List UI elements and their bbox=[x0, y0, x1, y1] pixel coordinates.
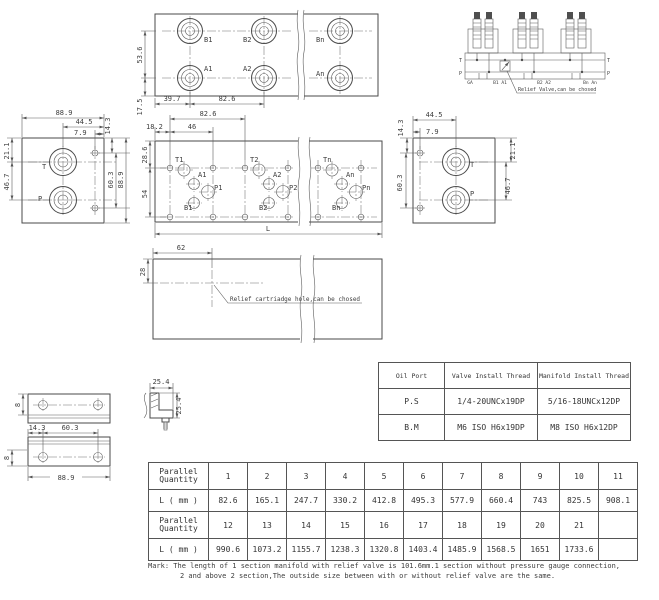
table-cell: 990.6 bbox=[209, 539, 248, 561]
port-label: P bbox=[38, 195, 42, 203]
oil-table-header: Oil Port bbox=[379, 363, 445, 389]
dim-label: 46.7 bbox=[3, 174, 11, 191]
table-cell: M6 ISO H6x19DP bbox=[445, 415, 538, 441]
dim-label: 88.9 bbox=[56, 109, 73, 117]
port-label: T2 bbox=[250, 156, 258, 164]
table-row: L ( mm ) 990.6 1073.2 1155.7 1238.3 1320… bbox=[149, 539, 638, 561]
schematic-label: B1 A1 bbox=[493, 80, 507, 86]
valve-symbol-1 bbox=[468, 12, 498, 79]
port-label: B2 bbox=[259, 204, 267, 212]
dim-label: 54 bbox=[141, 190, 149, 198]
mark-note-line2: 2 and above 2 section,The outside size b… bbox=[180, 571, 620, 581]
dim-label: 88.9 bbox=[58, 474, 75, 482]
table-cell: 4 bbox=[326, 463, 365, 490]
dim-label: 17.5 bbox=[136, 99, 144, 116]
table-cell: B.M bbox=[379, 415, 445, 441]
right-end-view: T P 44.5 7.9 14.3 60.3 21.1 46.7 bbox=[396, 111, 517, 223]
bracket-bottom-view: 14.3 60.3 8 88.9 bbox=[3, 424, 110, 482]
table-cell: 16 bbox=[365, 512, 404, 539]
table-cell: Parallel Quantity bbox=[149, 512, 209, 539]
table-cell: 743 bbox=[521, 490, 560, 512]
schematic-label: T bbox=[607, 58, 610, 64]
left-end-view: T P 88.9 44.5 7.9 14.3 21.1 46.7 60.3 88… bbox=[3, 109, 130, 223]
table-cell: 1651 bbox=[521, 539, 560, 561]
oil-table-header: Valve Install Thread bbox=[445, 363, 538, 389]
port-label: An bbox=[316, 70, 324, 78]
table-cell: L ( mm ) bbox=[149, 539, 209, 561]
port-label: Tn bbox=[323, 156, 331, 164]
table-cell: 7 bbox=[443, 463, 482, 490]
table-row: B.M M6 ISO H6x19DP M8 ISO H6x12DP bbox=[379, 415, 631, 441]
table-cell: 1403.4 bbox=[404, 539, 443, 561]
schematic-label: GA bbox=[467, 80, 473, 86]
dim-label: 7.9 bbox=[426, 128, 439, 136]
table-cell: 19 bbox=[482, 512, 521, 539]
table-cell: 6 bbox=[404, 463, 443, 490]
port-label: B1 bbox=[204, 36, 212, 44]
bracket-side-view: 25.4 25.4 bbox=[144, 378, 183, 430]
dim-label: 44.5 bbox=[76, 118, 93, 126]
table-row: L ( mm ) 82.6 165.1 247.7 330.2 412.8 49… bbox=[149, 490, 638, 512]
hydraulic-schematic: Relief Valve,can be chosed T P T P GA B1… bbox=[459, 12, 610, 93]
port-label: A1 bbox=[204, 65, 212, 73]
dim-label: 44.5 bbox=[426, 111, 443, 119]
table-cell: 21 bbox=[560, 512, 599, 539]
oil-port-table: Oil Port Valve Install Thread Manifold I… bbox=[378, 362, 631, 441]
port-label: P bbox=[470, 190, 474, 198]
main-view: T1 A1 P1 B1 T2 A2 P2 B2 bbox=[141, 110, 382, 238]
dim-label: 14.3 bbox=[397, 120, 405, 137]
table-cell: 20 bbox=[521, 512, 560, 539]
dim-label: 25.4 bbox=[175, 398, 183, 415]
bracket-top-view: 8 bbox=[14, 394, 110, 423]
schematic-label: P bbox=[459, 71, 462, 77]
schematic-label: T bbox=[459, 58, 462, 64]
valve-symbol-2 bbox=[513, 12, 543, 79]
table-cell: 11 bbox=[599, 463, 638, 490]
port-label: A1 bbox=[198, 171, 206, 179]
port-label: B1 bbox=[184, 204, 192, 212]
dim-label: 18.2 bbox=[146, 123, 163, 131]
dim-label: 53.6 bbox=[136, 47, 144, 64]
section-note: Relief cartriadge hole,can be chosed bbox=[230, 296, 360, 303]
dim-label: 82.6 bbox=[219, 95, 236, 103]
length-table: Parallel Quantity 1 2 3 4 5 6 7 8 9 10 1… bbox=[148, 462, 638, 561]
table-cell: 1320.8 bbox=[365, 539, 404, 561]
port-label: A2 bbox=[243, 65, 251, 73]
mark-note: Mark: The length of 1 section manifold w… bbox=[148, 561, 620, 581]
table-cell: 247.7 bbox=[287, 490, 326, 512]
table-cell: 15 bbox=[326, 512, 365, 539]
table-cell: 18 bbox=[443, 512, 482, 539]
port-label: Bn bbox=[316, 36, 324, 44]
table-cell: 1155.7 bbox=[287, 539, 326, 561]
dim-label: 8 bbox=[3, 456, 11, 460]
port-label: Bn bbox=[332, 204, 340, 212]
port-label: T1 bbox=[175, 156, 183, 164]
table-cell: 660.4 bbox=[482, 490, 521, 512]
table-cell: 1073.2 bbox=[248, 539, 287, 561]
table-cell: M8 ISO H6x12DP bbox=[538, 415, 631, 441]
table-cell: 10 bbox=[560, 463, 599, 490]
table-row: P.S 1/4-20UNCx19DP 5/16-18UNCx12DP bbox=[379, 389, 631, 415]
mark-note-line1: Mark: The length of 1 section manifold w… bbox=[148, 561, 620, 571]
table-cell: 13 bbox=[248, 512, 287, 539]
port-label: T bbox=[42, 163, 47, 171]
port-label: P1 bbox=[214, 184, 222, 192]
table-cell: 12 bbox=[209, 512, 248, 539]
dim-label: 60.3 bbox=[107, 172, 115, 189]
valve-station-1: T1 A1 P1 B1 bbox=[167, 156, 222, 222]
table-cell: 82.6 bbox=[209, 490, 248, 512]
port-label: B2 bbox=[243, 36, 251, 44]
table-cell: 825.5 bbox=[560, 490, 599, 512]
table-cell: 908.1 bbox=[599, 490, 638, 512]
port-label: An bbox=[346, 171, 354, 179]
table-cell: 412.8 bbox=[365, 490, 404, 512]
dim-label: 60.3 bbox=[396, 175, 404, 192]
table-cell: 330.2 bbox=[326, 490, 365, 512]
dim-label: 7.9 bbox=[74, 129, 87, 137]
dim-label: 46.7 bbox=[504, 178, 512, 195]
dim-label: 21.1 bbox=[509, 143, 517, 160]
schematic-label: B2 A2 bbox=[537, 80, 551, 86]
valve-station-n: Tn An Pn Bn bbox=[315, 156, 370, 222]
dim-label: 14.3 bbox=[29, 424, 46, 432]
dim-label: 28.6 bbox=[141, 147, 149, 164]
dim-label: 8 bbox=[14, 403, 22, 407]
dim-label: 46 bbox=[188, 123, 196, 131]
dim-label: 88.9 bbox=[117, 172, 125, 189]
table-cell: 1 bbox=[209, 463, 248, 490]
dim-label: 21.1 bbox=[3, 143, 11, 160]
table-cell: 1568.5 bbox=[482, 539, 521, 561]
port-label: Pn bbox=[362, 184, 370, 192]
schematic-label: P bbox=[607, 71, 610, 77]
table-row: Parallel Quantity 12 13 14 15 16 17 18 1… bbox=[149, 512, 638, 539]
table-cell: 3 bbox=[287, 463, 326, 490]
dim-label: 25.4 bbox=[153, 378, 170, 386]
table-cell: 5/16-18UNCx12DP bbox=[538, 389, 631, 415]
dim-label: 60.3 bbox=[62, 424, 79, 432]
table-cell: 8 bbox=[482, 463, 521, 490]
dim-label: 14.3 bbox=[104, 118, 112, 135]
table-cell: P.S bbox=[379, 389, 445, 415]
table-cell: 1238.3 bbox=[326, 539, 365, 561]
dim-label: L bbox=[266, 225, 270, 233]
table-cell: 5 bbox=[365, 463, 404, 490]
table-cell: 14 bbox=[287, 512, 326, 539]
table-cell: L ( mm ) bbox=[149, 490, 209, 512]
table-cell: 9 bbox=[521, 463, 560, 490]
table-cell: 577.9 bbox=[443, 490, 482, 512]
table-cell: 1485.9 bbox=[443, 539, 482, 561]
table-cell bbox=[599, 539, 638, 561]
section-view: 62 28 Relief cartriadge hole,can be chos… bbox=[139, 244, 382, 343]
port-label: A2 bbox=[273, 171, 281, 179]
dim-label: 28 bbox=[139, 268, 147, 276]
dim-label: 62 bbox=[177, 244, 185, 252]
table-cell: 165.1 bbox=[248, 490, 287, 512]
schematic-note: Relief Valve,can be chosed bbox=[518, 87, 596, 93]
port-label: P2 bbox=[289, 184, 297, 192]
table-cell: Parallel Quantity bbox=[149, 463, 209, 490]
table-cell: 1/4-20UNCx19DP bbox=[445, 389, 538, 415]
valve-station-2: T2 A2 P2 B2 bbox=[242, 156, 297, 222]
table-row: Parallel Quantity 1 2 3 4 5 6 7 8 9 10 1… bbox=[149, 463, 638, 490]
dim-label: 82.6 bbox=[200, 110, 217, 118]
table-cell: 495.3 bbox=[404, 490, 443, 512]
oil-table-header: Manifold Install Thread bbox=[538, 363, 631, 389]
top-view: B1 B2 Bn A1 A2 An 39.7 82.6 53.6 17.5 bbox=[136, 10, 378, 115]
dim-label: 39.7 bbox=[164, 95, 181, 103]
table-cell: 2 bbox=[248, 463, 287, 490]
valve-symbol-3 bbox=[561, 12, 591, 79]
table-cell: 1733.6 bbox=[560, 539, 599, 561]
schematic-label: Bn An bbox=[583, 80, 597, 86]
table-cell bbox=[599, 512, 638, 539]
table-cell: 17 bbox=[404, 512, 443, 539]
